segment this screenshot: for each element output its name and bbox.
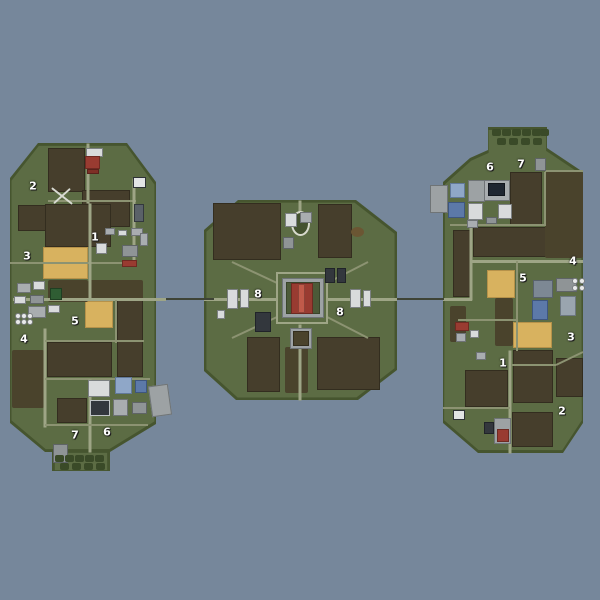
road bbox=[544, 172, 546, 225]
road bbox=[458, 319, 517, 321]
building-pad bbox=[430, 185, 448, 213]
field-dark bbox=[513, 350, 553, 403]
field-yellow bbox=[487, 270, 515, 298]
field-number-marker: 6 bbox=[103, 427, 111, 438]
building-gray bbox=[476, 352, 486, 360]
building-white bbox=[118, 230, 127, 236]
building-bluegray2 bbox=[560, 296, 576, 316]
building-darkframe bbox=[90, 400, 110, 416]
field-number-marker: 7 bbox=[71, 430, 79, 441]
hedge-row bbox=[72, 463, 81, 470]
building-dark bbox=[484, 422, 494, 434]
field-dark bbox=[512, 412, 553, 447]
building-gray bbox=[17, 283, 31, 293]
game-map-overview: 2315476886745312 bbox=[0, 0, 600, 600]
building-gray2 bbox=[122, 245, 138, 257]
field-dark bbox=[213, 203, 281, 260]
road bbox=[89, 203, 92, 300]
building-white bbox=[350, 289, 361, 308]
field-number-marker: 2 bbox=[29, 181, 37, 192]
hedge-row bbox=[509, 138, 518, 145]
building-gray2 bbox=[535, 158, 546, 171]
building-blue2 bbox=[115, 377, 132, 394]
building-white bbox=[498, 204, 512, 219]
hedge-row bbox=[65, 455, 74, 462]
building-blue bbox=[448, 202, 465, 218]
building-bluegray bbox=[533, 280, 553, 298]
building-red bbox=[122, 260, 137, 267]
building-white bbox=[468, 203, 483, 220]
building-white bbox=[285, 213, 297, 227]
hedge-row bbox=[522, 129, 531, 136]
building-white bbox=[14, 296, 26, 304]
building-gray bbox=[140, 233, 148, 246]
hedge-row bbox=[492, 129, 501, 136]
field-number-marker: 4 bbox=[20, 334, 28, 345]
field-number-marker: 3 bbox=[23, 251, 31, 262]
field-number-marker: 5 bbox=[71, 316, 79, 327]
hedge-row bbox=[502, 129, 511, 136]
field-number-marker: 8 bbox=[254, 289, 262, 300]
hedge-row bbox=[497, 138, 506, 145]
building-redLight bbox=[298, 284, 305, 313]
road bbox=[48, 200, 136, 202]
building-white bbox=[363, 290, 371, 307]
field-number-marker: 1 bbox=[499, 358, 507, 369]
forest-patch bbox=[545, 172, 583, 258]
field-dark bbox=[247, 337, 280, 392]
building-red bbox=[497, 429, 509, 442]
building-white bbox=[48, 305, 60, 313]
road bbox=[45, 424, 148, 426]
road bbox=[450, 224, 546, 226]
road bbox=[512, 364, 556, 366]
road bbox=[443, 298, 472, 301]
field-number-marker: 3 bbox=[567, 332, 575, 343]
road bbox=[472, 260, 583, 263]
building-white bbox=[470, 330, 479, 338]
field-number-marker: 4 bbox=[569, 256, 577, 267]
field-number-marker: 5 bbox=[519, 273, 527, 284]
bridge bbox=[166, 298, 214, 300]
hedge-row bbox=[55, 455, 64, 462]
field-number-marker: 8 bbox=[336, 307, 344, 318]
building-pad bbox=[148, 384, 172, 417]
building-gray2 bbox=[132, 402, 147, 414]
field-dark bbox=[465, 370, 508, 407]
building-white bbox=[88, 380, 110, 397]
building-white bbox=[217, 310, 225, 319]
hedge-row bbox=[85, 455, 94, 462]
road bbox=[516, 261, 518, 351]
field-dark bbox=[473, 227, 550, 257]
field-yellow bbox=[513, 322, 552, 348]
hedge-row bbox=[533, 138, 542, 145]
road bbox=[115, 300, 117, 343]
field-dark bbox=[18, 205, 46, 231]
building-pad bbox=[468, 180, 485, 202]
building-red bbox=[455, 322, 469, 331]
field-number-marker: 6 bbox=[486, 162, 494, 173]
road bbox=[545, 170, 583, 172]
field-yellow bbox=[85, 301, 113, 328]
field-number-marker: 2 bbox=[558, 406, 566, 417]
road bbox=[45, 340, 144, 342]
building-blue bbox=[532, 300, 548, 320]
hedge-row bbox=[75, 455, 84, 462]
hedge-row bbox=[521, 138, 530, 145]
building-gray bbox=[300, 212, 312, 223]
building-dark bbox=[325, 268, 335, 283]
building-red2 bbox=[87, 169, 99, 174]
forest-patch bbox=[12, 350, 44, 408]
building-green bbox=[50, 288, 62, 300]
building-dark bbox=[337, 268, 346, 283]
building-gray2 bbox=[486, 217, 497, 224]
building-frame bbox=[453, 410, 465, 420]
building-blue bbox=[135, 380, 147, 393]
field-dark bbox=[47, 342, 112, 377]
building-white bbox=[33, 281, 45, 290]
field-dark bbox=[317, 337, 380, 390]
building-red bbox=[85, 156, 100, 169]
field-dark bbox=[117, 300, 143, 377]
silo-dot bbox=[579, 278, 585, 284]
forest-patch bbox=[285, 347, 308, 393]
dirt-patch bbox=[351, 227, 364, 237]
field-dark bbox=[510, 172, 542, 225]
forest-patch bbox=[495, 298, 513, 346]
building-white bbox=[96, 243, 107, 254]
field-number-marker: 1 bbox=[91, 232, 99, 243]
hedge-row bbox=[96, 463, 105, 470]
hedge-row bbox=[95, 455, 104, 462]
road bbox=[327, 298, 397, 301]
hedge-row bbox=[84, 463, 93, 470]
road bbox=[470, 225, 473, 300]
hedge-row bbox=[60, 463, 69, 470]
building-white bbox=[227, 289, 238, 309]
silo-dot bbox=[27, 319, 33, 325]
field-dark bbox=[48, 148, 85, 192]
field-dark bbox=[45, 204, 111, 247]
silo-dot bbox=[572, 278, 578, 284]
silo-dot bbox=[579, 285, 585, 291]
bridge bbox=[397, 298, 444, 300]
building-gray bbox=[105, 228, 115, 235]
building-gray bbox=[467, 220, 478, 228]
building-blue2 bbox=[450, 183, 465, 198]
building-gray bbox=[456, 333, 466, 342]
building-gray2 bbox=[283, 237, 294, 249]
building-gray2 bbox=[30, 295, 44, 304]
field-dark bbox=[318, 204, 352, 258]
building-dark bbox=[255, 312, 271, 332]
field-number-marker: 7 bbox=[517, 159, 525, 170]
building-panel bbox=[134, 204, 144, 222]
hedge-row bbox=[512, 129, 521, 136]
hedge-row bbox=[540, 129, 549, 136]
building-navy bbox=[488, 183, 505, 196]
building-frame bbox=[133, 177, 146, 188]
building-white bbox=[240, 289, 249, 308]
silo-dot bbox=[572, 285, 578, 291]
road bbox=[443, 407, 510, 409]
field-dark bbox=[57, 398, 87, 423]
building-gray bbox=[113, 399, 128, 416]
building-forestPatch bbox=[293, 331, 309, 346]
